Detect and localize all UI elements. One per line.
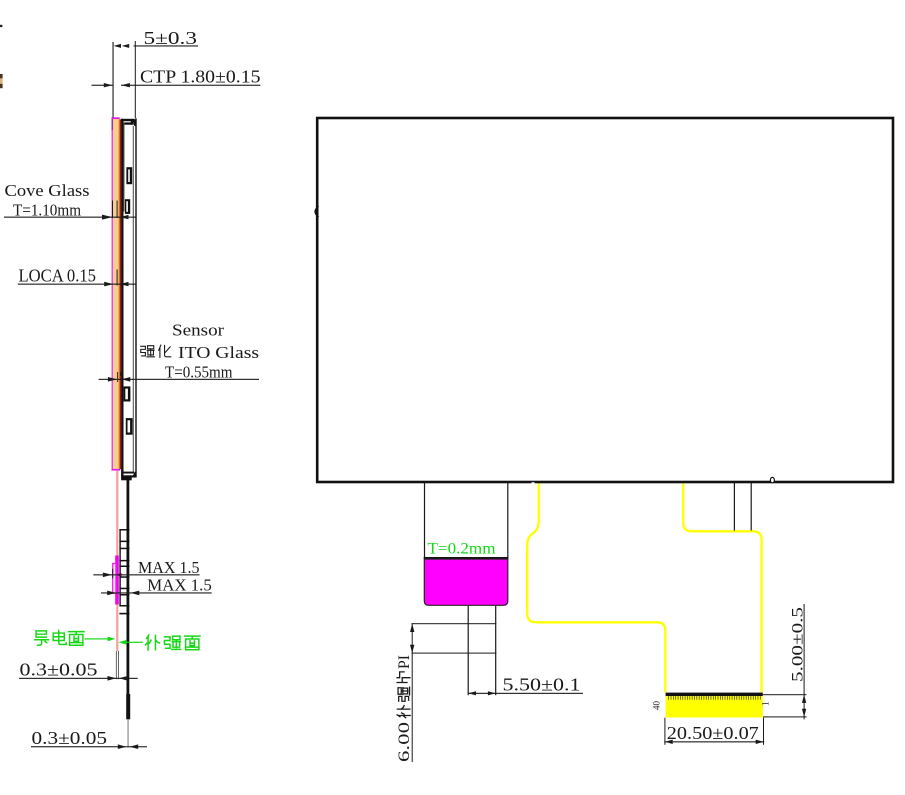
svg-text:ITO Glass: ITO Glass	[178, 343, 259, 362]
svg-text:0.3±0.05: 0.3±0.05	[32, 728, 108, 748]
svg-text:T=0.55mm: T=0.55mm	[165, 363, 233, 382]
svg-text:PI: PI	[396, 655, 413, 669]
svg-text:MAX 1.5: MAX 1.5	[138, 558, 200, 577]
svg-text:CTP 1.80±0.15: CTP 1.80±0.15	[140, 67, 261, 87]
svg-text:5±0.3: 5±0.3	[144, 28, 198, 48]
svg-text:20.50±0.07: 20.50±0.07	[667, 723, 759, 743]
svg-text:6.00: 6.00	[396, 722, 413, 762]
svg-text:Sensor: Sensor	[172, 321, 224, 340]
svg-text:T=0.2mm: T=0.2mm	[428, 541, 497, 558]
svg-text:0.3±0.05: 0.3±0.05	[20, 660, 98, 680]
svg-text:40: 40	[652, 701, 662, 711]
svg-text:MAX 1.5: MAX 1.5	[147, 576, 212, 595]
svg-text:LOCA 0.15: LOCA 0.15	[19, 266, 97, 286]
svg-text:Cove Glass: Cove Glass	[5, 181, 90, 200]
svg-text:1: 1	[761, 702, 771, 707]
svg-text:5.50±0.1: 5.50±0.1	[503, 675, 581, 695]
